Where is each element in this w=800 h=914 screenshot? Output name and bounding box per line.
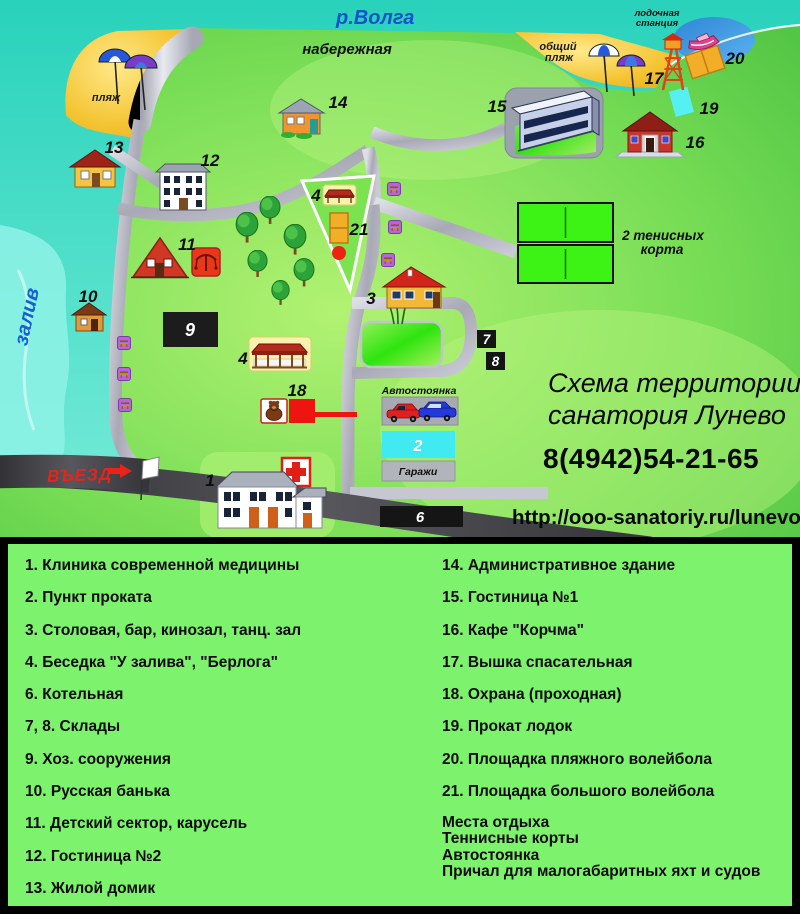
map-number-18: 18	[288, 381, 307, 400]
garages-label: Гаражи	[399, 466, 438, 478]
tennis-label-2: корта	[641, 242, 684, 257]
carousel-icon	[192, 248, 220, 276]
legend-item: 6. Котельная	[25, 685, 301, 704]
map-number-2: 2	[413, 438, 423, 455]
map-number-6: 6	[416, 509, 425, 526]
security-box	[289, 399, 315, 423]
map-number-1: 1	[205, 471, 214, 490]
legend-item: 16. Кафе "Корчма"	[442, 621, 760, 640]
rest-bench-icon	[382, 254, 395, 267]
legend-item: 3. Столовая, бар, кинозал, танц. зал	[25, 621, 301, 640]
legend-item: 10. Русская банька	[25, 782, 301, 801]
map-number-14: 14	[329, 93, 348, 112]
legend-item: 18. Охрана (проходная)	[442, 685, 760, 704]
beach-label: пляж	[92, 92, 121, 104]
rest-bench-icon	[389, 221, 402, 234]
legend-extra-block: Места отдыхаТеннисные кортыАвтостоянкаПр…	[442, 815, 760, 881]
rest-lawn	[361, 322, 442, 367]
map-title-line2: санатория Лунево	[548, 400, 786, 430]
legend-panel: 1. Клиника современной медицины2. Пункт …	[0, 537, 800, 914]
map-number-10: 10	[79, 287, 98, 306]
rest-bench-icon	[388, 183, 401, 196]
legend-item: 11. Детский сектор, карусель	[25, 814, 301, 833]
legend-item: 9. Хоз. сооружения	[25, 750, 301, 769]
entrance-label: ВЪЕЗД	[47, 465, 113, 486]
barrier-line	[313, 412, 357, 417]
legend-item: 21. Площадка большого волейбола	[442, 782, 760, 801]
map-canvas: р.Волга набережная пляж общий пляж лодоч…	[0, 0, 800, 537]
hotel-2-icon	[156, 164, 210, 210]
legend-item: Теннисные корты	[442, 831, 760, 847]
map-number-19: 19	[700, 99, 719, 118]
public-beach-label-2: пляж	[545, 52, 574, 64]
legend-board: 1. Клиника современной медицины2. Пункт …	[8, 544, 792, 906]
map-number-3: 3	[366, 289, 376, 308]
map-number-21: 21	[349, 220, 369, 239]
map-title-line1: Схема территории	[548, 368, 800, 398]
legend-item: 17. Вышка спасательная	[442, 653, 760, 672]
map-number-9: 9	[185, 320, 195, 340]
tennis-courts	[518, 203, 613, 283]
legend-item: 4. Беседка "У залива", "Берлога"	[25, 653, 301, 672]
map-number-11: 11	[178, 235, 196, 254]
legend-item: 1. Клиника современной медицины	[25, 556, 301, 575]
legend-column-left: 1. Клиника современной медицины2. Пункт …	[25, 556, 301, 898]
map-number-4a: 4	[310, 186, 321, 205]
map-number-4b: 4	[237, 349, 248, 368]
legend-item: 14. Административное здание	[442, 556, 760, 575]
tennis-label-1: 2 тенисных	[621, 228, 704, 243]
embankment-label: набережная	[302, 41, 392, 58]
legend-column-right: 14. Административное здание15. Гостиница…	[442, 556, 760, 881]
river-label: р.Волга	[335, 7, 414, 29]
rest-bench-icon	[118, 337, 131, 350]
boat-station-label-2: станция	[636, 18, 679, 29]
legend-item: 20. Площадка пляжного волейбола	[442, 750, 760, 769]
map-number-16: 16	[686, 133, 705, 152]
legend-item: 12. Гостиница №2	[25, 847, 301, 866]
sanatorium-map-page: р.Волга набережная пляж общий пляж лодоч…	[0, 0, 800, 914]
pavilion-berloga-icon	[323, 185, 356, 205]
legend-item: 2. Пункт проката	[25, 588, 301, 607]
rest-bench-icon	[118, 368, 131, 381]
territory-map: р.Волга набережная пляж общий пляж лодоч…	[0, 0, 800, 537]
legend-item: 15. Гостиница №1	[442, 588, 760, 607]
red-circle-marker	[332, 246, 346, 260]
big-volleyball-area	[330, 213, 348, 260]
map-number-15: 15	[488, 97, 507, 116]
legend-item: Места отдыха	[442, 815, 760, 831]
legend-item: 19. Прокат лодок	[442, 717, 760, 736]
legend-item: 7, 8. Склады	[25, 717, 301, 736]
map-number-20: 20	[725, 49, 745, 68]
phone-number: 8(4942)54-21-65	[543, 443, 759, 474]
pavilion-zaliv-icon	[249, 337, 311, 371]
map-number-8: 8	[492, 354, 500, 369]
parking-label: Автостоянка	[381, 385, 457, 397]
legend-item: Причал для малогабаритных яхт и судов	[442, 864, 760, 880]
map-number-17: 17	[645, 69, 665, 88]
website-url: http://ooo-sanatoriy.ru/lunevo	[512, 506, 800, 529]
map-number-12: 12	[201, 151, 220, 170]
legend-item: Автостоянка	[442, 848, 760, 864]
map-number-13: 13	[105, 138, 124, 157]
rest-bench-icon	[119, 399, 132, 412]
legend-item: 13. Жилой домик	[25, 879, 301, 898]
